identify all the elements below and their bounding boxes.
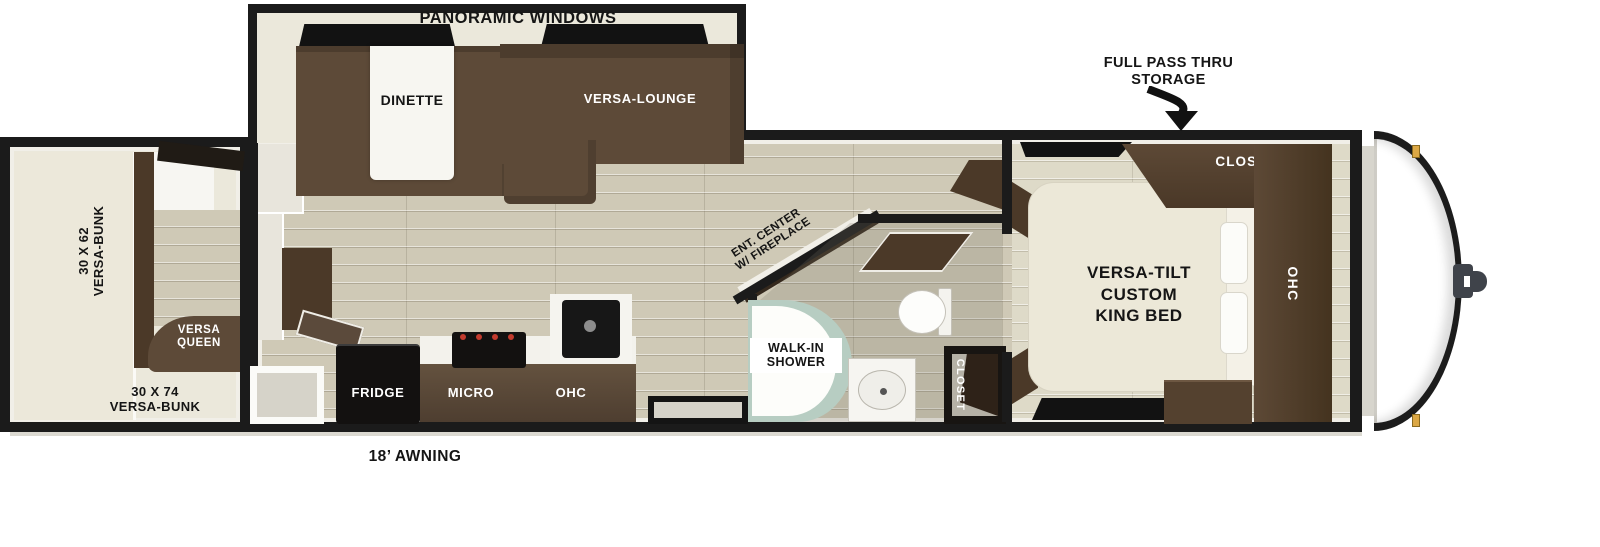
storage-arrow-icon — [1102, 86, 1262, 132]
versa-lounge-chaise — [504, 140, 596, 204]
bed-sheet-band — [1226, 188, 1256, 386]
bunk74-line1: 30 X 74 — [95, 385, 215, 400]
burner-knob — [508, 334, 514, 340]
marker-light-bottom — [1412, 414, 1420, 427]
bedroom-wall-lower — [1002, 352, 1012, 422]
storage-line1: FULL PASS THRU — [1076, 55, 1261, 72]
dinette-table — [370, 46, 454, 180]
drain-icon — [880, 388, 887, 395]
burner-knob — [492, 334, 498, 340]
versa-lounge-label: VERSA-LOUNGE — [560, 92, 720, 107]
bunkroom-floor — [154, 210, 240, 326]
bedroom-wall-upper — [1002, 140, 1012, 234]
bottom-outer-trim — [10, 432, 1362, 436]
versa-queen-label: VERSA QUEEN — [160, 324, 238, 350]
dinette-label: DINETTE — [370, 92, 454, 108]
shower-line1: WALK-IN — [750, 341, 842, 355]
burner-knob — [460, 334, 466, 340]
bed-line3: KING BED — [1049, 305, 1229, 327]
bed-line2: CUSTOM — [1049, 284, 1229, 306]
bath-closet-label: CLOSET — [952, 350, 966, 420]
king-bed-label: VERSA-TILT CUSTOM KING BED — [1049, 262, 1229, 327]
bedroom-window-top — [1020, 142, 1132, 157]
fridge: FRIDGE — [336, 344, 420, 424]
panoramic-windows-label: PANORAMIC WINDOWS — [368, 9, 668, 28]
hitch-notch — [1464, 276, 1470, 287]
rear-entry-step — [250, 366, 324, 424]
bunk-30x62-platform — [14, 152, 136, 420]
burner-knob — [476, 334, 482, 340]
fridge-label: FRIDGE — [336, 386, 420, 401]
bathroom-top-wall — [858, 214, 1006, 223]
faucet-icon — [584, 320, 596, 332]
toilet-bowl — [898, 290, 946, 334]
front-storage-gap — [1362, 146, 1374, 416]
bed-line1: VERSA-TILT — [1049, 262, 1229, 284]
nightstand — [1164, 380, 1252, 424]
shower-line2: SHOWER — [750, 355, 842, 369]
queen-line1: VERSA — [160, 324, 238, 337]
bunk62-line1: 30 X 62 — [77, 191, 92, 311]
hitch-arm — [1470, 271, 1487, 292]
bath-sink — [858, 370, 906, 410]
pass-thru-storage-label: FULL PASS THRU STORAGE — [1076, 55, 1261, 89]
queen-line2: QUEEN — [160, 337, 238, 350]
front-cap — [1374, 139, 1456, 423]
rear-partition-wall-lower — [258, 214, 284, 340]
bunk74-line2: VERSA-BUNK — [95, 400, 215, 415]
bedroom-ohc-label: OHC — [1285, 254, 1301, 314]
bunk-divider-cabinet — [134, 152, 154, 368]
bunk62-line2: VERSA-BUNK — [92, 191, 107, 311]
stove — [452, 332, 526, 368]
bunk-30x74-label: 30 X 74 VERSA-BUNK — [95, 385, 215, 415]
awning-label: 18’ AWNING — [330, 448, 500, 466]
entry-door-sill — [648, 396, 748, 424]
kitchen-ohc-label: OHC — [528, 386, 614, 401]
micro-label: MICRO — [428, 386, 514, 401]
floorplan-canvas: FRIDGE MICRO OHC ENT. CENTER W/ FIREPLAC… — [0, 0, 1600, 547]
kitchen-sink — [562, 300, 620, 358]
bunk-30x62-label: 30 X 62 VERSA-BUNK — [77, 191, 107, 311]
shower-label: WALK-IN SHOWER — [750, 338, 842, 373]
marker-light-top — [1412, 145, 1420, 158]
